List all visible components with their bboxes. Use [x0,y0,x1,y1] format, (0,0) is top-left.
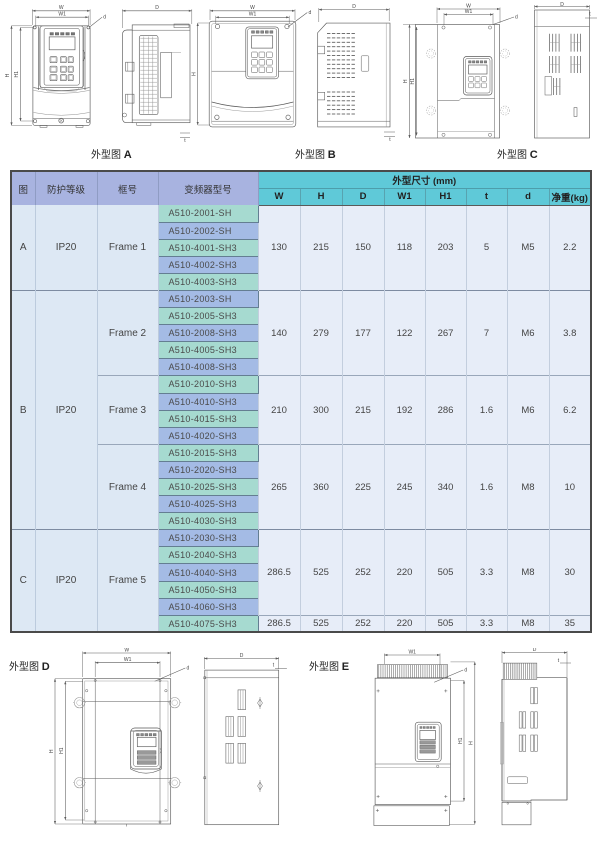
svg-text:H: H [5,73,11,77]
svg-text:W: W [250,5,255,11]
svg-text:d: d [515,14,518,20]
svg-text:D: D [155,5,159,11]
svg-text:W: W [59,5,64,11]
svg-text:d: d [464,667,467,673]
svg-text:W1: W1 [124,657,132,663]
svg-text:t: t [184,138,186,144]
svg-text:t: t [558,658,560,664]
svg-text:H: H [191,72,197,76]
svg-text:W1: W1 [58,12,66,18]
svg-text:D: D [533,648,537,653]
svg-text:H1: H1 [14,71,20,78]
svg-text:D: D [352,4,356,10]
svg-text:W1: W1 [408,649,416,655]
svg-text:D: D [240,653,244,659]
svg-text:W1: W1 [249,12,257,18]
svg-text:D: D [560,2,564,8]
svg-text:W: W [124,648,129,653]
svg-text:H: H [469,741,475,745]
svg-text:d: d [187,665,190,671]
svg-text:t: t [273,663,275,669]
svg-text:t: t [589,12,591,18]
svg-text:W1: W1 [465,9,473,15]
svg-text:d: d [103,15,106,21]
svg-text:t: t [389,137,391,143]
svg-text:H: H [403,79,409,83]
svg-text:H: H [49,749,55,753]
svg-text:H1: H1 [59,747,65,754]
svg-text:d: d [309,10,312,16]
svg-text:H1: H1 [458,737,464,744]
